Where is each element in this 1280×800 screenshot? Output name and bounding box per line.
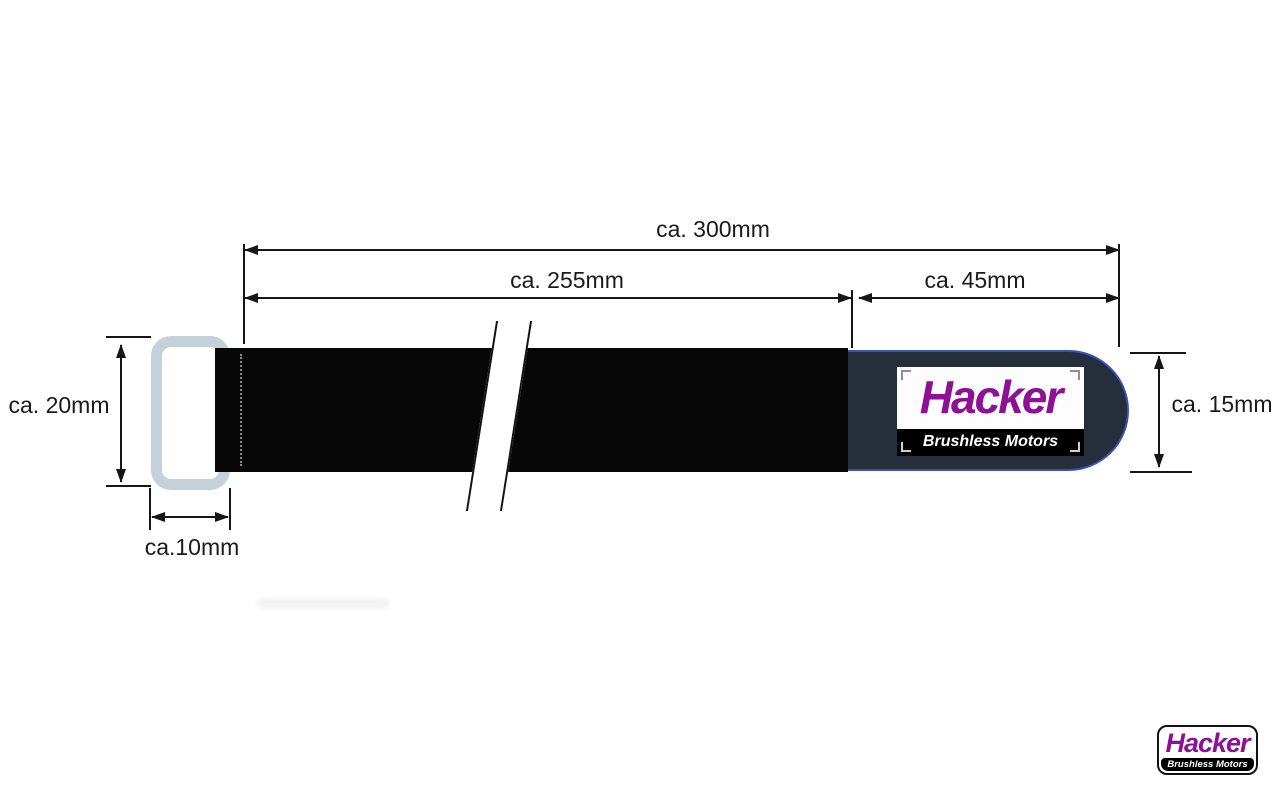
product-dimension-diagram: ca. 300mm ca. 255mm ca. 45mm ca. 20mm ca…: [0, 0, 1280, 800]
extension-line-buckle-width-left: [149, 488, 151, 530]
stitch-corner-mark: [901, 370, 911, 380]
dimension-label-total-length: ca. 300mm: [593, 216, 833, 243]
dimension-label-tab-length: ca. 45mm: [855, 267, 1095, 294]
dimension-line-buckle-height: [120, 345, 122, 482]
hacker-logo: Hacker Brushless Motors: [1157, 725, 1258, 775]
dimension-line-tab-length: [859, 297, 1119, 299]
strap-webbing: [215, 348, 848, 472]
dimension-label-strap-length: ca. 255mm: [447, 267, 687, 294]
dimension-label-tab-height: ca. 15mm: [1162, 391, 1280, 418]
dimension-label-buckle-height: ca. 20mm: [6, 392, 112, 419]
dimension-line-tab-height: [1158, 356, 1160, 467]
dimension-line-buckle-width: [152, 516, 228, 518]
extension-line-middle: [851, 290, 853, 348]
stitch-line: [240, 354, 242, 466]
logo-brand-subtitle-text: Brushless Motors: [1161, 758, 1254, 771]
strap-brand-label: Hacker Brushless Motors: [897, 367, 1084, 456]
tick-tab-top: [1130, 352, 1186, 354]
extension-line-left: [243, 244, 245, 344]
extension-line-buckle-width-right: [229, 488, 231, 530]
stitch-corner-mark: [901, 442, 911, 452]
stitch-corner-mark: [1070, 442, 1080, 452]
faint-watermark-smudge: [257, 598, 389, 609]
brand-subtitle-text: Brushless Motors: [897, 429, 1084, 456]
tick-buckle-bottom: [106, 485, 151, 487]
tick-buckle-top: [106, 336, 151, 338]
extension-line-right: [1118, 244, 1120, 347]
logo-brand-name-text: Hacker: [1159, 727, 1256, 759]
dimension-line-total-length: [245, 249, 1119, 251]
brand-name-text: Hacker: [897, 367, 1084, 429]
dimension-line-strap-length: [245, 297, 851, 299]
tick-tab-bottom: [1130, 471, 1192, 473]
stitch-corner-mark: [1070, 370, 1080, 380]
dimension-label-buckle-width: ca.10mm: [132, 534, 252, 561]
